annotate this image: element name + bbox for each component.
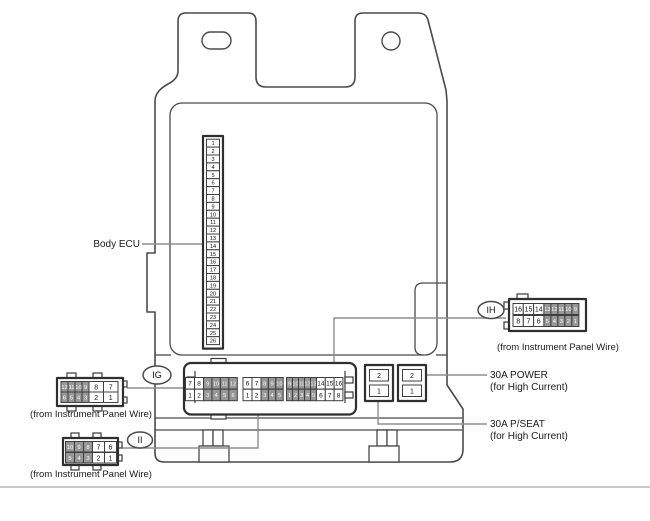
pin-number: 5 xyxy=(68,456,71,462)
pin-number: 1 xyxy=(188,392,192,399)
pin-number: 8 xyxy=(86,445,89,451)
pin-number: 5 xyxy=(70,395,73,401)
pin-number: 10 xyxy=(565,307,571,313)
ii-caption: (from Instrument Panel Wire) xyxy=(30,469,152,480)
pin-number: 3 xyxy=(300,393,303,399)
pin-number: 16 xyxy=(210,260,216,266)
pin-number: 19 xyxy=(210,283,216,289)
bottom-tab xyxy=(213,430,223,446)
power-fuse-sublabel: (for High Current) xyxy=(490,382,568,393)
pin-number: 6 xyxy=(232,393,235,399)
body-ecu-location-diagram: 1234567891011121314151617181920212223242… xyxy=(0,0,650,521)
pin-number: 1 xyxy=(288,393,291,399)
pin-number: 14 xyxy=(317,381,325,388)
pin-number: 6 xyxy=(246,381,250,388)
pin-number: 9 xyxy=(206,381,209,387)
ii-pin-cells: 10987654321 xyxy=(66,442,117,464)
pin-number: 10 xyxy=(210,212,216,218)
fuse-number: 2 xyxy=(377,373,381,380)
pin-number: 21 xyxy=(210,299,216,305)
pin-number: 13 xyxy=(310,381,316,387)
pin-number: 5 xyxy=(278,393,281,399)
pin-number: 17 xyxy=(210,268,216,274)
pin-number: 10 xyxy=(75,385,81,391)
pin-number: 8 xyxy=(211,197,214,203)
mounting-round-hole xyxy=(382,32,400,50)
pin-number: 6 xyxy=(537,319,541,326)
pin-number: 26 xyxy=(210,339,216,345)
pin-number: 5 xyxy=(546,319,549,325)
pin-number: 9 xyxy=(271,381,274,387)
pin-number: 5 xyxy=(312,393,315,399)
ig-label: IG xyxy=(152,370,162,380)
pin-number: 1 xyxy=(109,395,113,402)
pin-number: 12 xyxy=(61,385,67,391)
body-ecu-label: Body ECU xyxy=(93,239,140,250)
pin-number: 9 xyxy=(288,381,291,387)
pin-number: 3 xyxy=(206,393,209,399)
pin-number: 3 xyxy=(211,157,214,163)
pin-number: 11 xyxy=(222,381,228,387)
ih-caption: (from Instrument Panel Wire) xyxy=(497,342,619,353)
pin-number: 6 xyxy=(319,392,323,399)
pin-number: 10 xyxy=(213,381,219,387)
pin-number: 2 xyxy=(567,319,570,325)
ii-label: II xyxy=(137,435,142,445)
pin-number: 15 xyxy=(210,252,216,258)
pseat-fuse-label: 30A P/SEAT xyxy=(490,419,545,430)
pin-number: 11 xyxy=(210,220,216,226)
pin-number: 12 xyxy=(210,228,216,234)
pin-number: 11 xyxy=(68,385,74,391)
body-ecu-pin-strip: 1234567891011121314151617181920212223242… xyxy=(203,136,223,349)
main-connector-group-3: 91011121314151612345678 xyxy=(287,378,343,401)
pin-number: 7 xyxy=(328,392,332,399)
pin-number: 2 xyxy=(94,395,98,402)
end-lug xyxy=(345,377,353,383)
pin-number: 7 xyxy=(526,319,530,326)
pin-number: 4 xyxy=(211,165,214,171)
pin-number: 2 xyxy=(197,392,201,399)
pin-strip-cells: 1234567891011121314151617181920212223242… xyxy=(207,139,220,345)
pin-number: 4 xyxy=(306,393,309,399)
bottom-tab xyxy=(387,430,397,446)
pin-number: 12 xyxy=(230,381,236,387)
pin-number: 3 xyxy=(86,456,89,462)
pin-number: 10 xyxy=(276,381,282,387)
pin-number: 8 xyxy=(94,384,98,391)
pin-number: 9 xyxy=(84,385,87,391)
pseat-fuse-sublabel: (for High Current) xyxy=(490,431,568,442)
pin-number: 11 xyxy=(558,307,564,313)
ig-caption: (from Instrument Panel Wire) xyxy=(30,409,152,420)
pin-number: 2 xyxy=(97,455,101,462)
pin-number: 14 xyxy=(210,244,216,250)
pin-number: 2 xyxy=(211,149,214,155)
pin-number: 9 xyxy=(574,307,577,313)
pin-number: 16 xyxy=(514,307,522,314)
pin-number: 7 xyxy=(255,381,259,388)
fuse-number: 2 xyxy=(410,373,414,380)
end-lug xyxy=(345,392,353,398)
pin-number: 20 xyxy=(210,291,216,297)
pin-number: 9 xyxy=(211,204,214,210)
pin-number: 3 xyxy=(84,395,87,401)
pin-number: 15 xyxy=(326,381,334,388)
pin-number: 1 xyxy=(574,319,577,325)
pin-number: 3 xyxy=(560,319,563,325)
pin-number: 7 xyxy=(97,444,101,451)
mounting-slot-hole xyxy=(202,32,231,49)
pin-number: 2 xyxy=(294,393,297,399)
fuse-number: 1 xyxy=(410,388,414,395)
pin-number: 8 xyxy=(516,319,520,326)
pin-number: 24 xyxy=(210,323,216,329)
main-connector-group-1: 789101112123456 xyxy=(186,378,238,401)
power-fuse-label: 30A POWER xyxy=(490,370,548,381)
main-connector-group-2: 67891012345 xyxy=(243,378,283,401)
pin-number: 4 xyxy=(271,393,274,399)
pin-number: 15 xyxy=(525,307,533,314)
diagram-page: 1234567891011121314151617181920212223242… xyxy=(0,0,650,521)
pin-number: 1 xyxy=(246,392,250,399)
ih-pin-cells: 16151413121110987654321 xyxy=(513,304,579,327)
pin-number: 8 xyxy=(197,381,201,388)
pin-number: 4 xyxy=(215,393,218,399)
pin-number: 25 xyxy=(210,331,216,337)
pin-number: 5 xyxy=(223,393,226,399)
pin-number: 5 xyxy=(211,173,214,179)
pin-number: 1 xyxy=(109,455,113,462)
pin-number: 1 xyxy=(211,141,214,147)
mounting-foot xyxy=(369,446,399,462)
pin-number: 6 xyxy=(63,395,66,401)
pin-number: 7 xyxy=(109,384,113,391)
ih-label: IH xyxy=(487,305,496,315)
ig-pin-cells: 121110987654321 xyxy=(61,382,118,403)
pin-number: 6 xyxy=(211,181,214,187)
pin-number: 14 xyxy=(535,307,543,314)
pin-number: 18 xyxy=(210,276,216,282)
bottom-tab xyxy=(203,430,213,446)
pin-number: 7 xyxy=(211,189,214,195)
bottom-tab xyxy=(377,430,387,446)
pin-number: 16 xyxy=(335,381,343,388)
pin-number: 7 xyxy=(188,381,192,388)
pin-number: 6 xyxy=(109,444,113,451)
pin-number: 13 xyxy=(210,236,216,242)
pin-number: 22 xyxy=(210,307,216,313)
pin-number: 13 xyxy=(544,307,550,313)
fuse-number: 1 xyxy=(377,388,381,395)
pin-number: 8 xyxy=(337,392,341,399)
pin-number: 8 xyxy=(263,381,266,387)
main-bottom-connector: 789101112123456 67891012345 910111213141… xyxy=(184,359,356,420)
pin-number: 9 xyxy=(77,445,80,451)
pin-number: 12 xyxy=(551,307,557,313)
pin-number: 2 xyxy=(255,392,259,399)
pin-number: 3 xyxy=(263,393,266,399)
pin-number: 23 xyxy=(210,315,216,321)
pin-number: 10 xyxy=(67,445,73,451)
